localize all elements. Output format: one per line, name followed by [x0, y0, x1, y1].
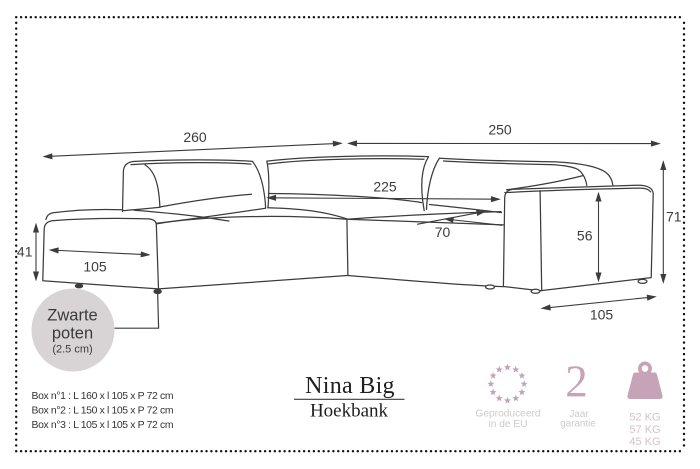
svg-text:70: 70	[435, 224, 451, 240]
svg-text:52 KG: 52 KG	[629, 412, 660, 424]
svg-text:105: 105	[83, 259, 107, 275]
svg-text:(2.5 cm): (2.5 cm)	[52, 344, 92, 356]
svg-text:57 KG: 57 KG	[629, 424, 660, 436]
svg-text:garantie: garantie	[560, 419, 596, 430]
svg-text:poten: poten	[52, 325, 93, 343]
svg-text:Nina Big: Nina Big	[305, 373, 395, 399]
svg-text:56: 56	[577, 228, 593, 244]
svg-text:41: 41	[17, 243, 33, 259]
svg-text:105: 105	[590, 307, 614, 323]
svg-text:Box n°3 : L 105 x l 105 x P 72: Box n°3 : L 105 x l 105 x P 72 cm	[32, 420, 174, 431]
svg-text:in de EU: in de EU	[488, 419, 527, 430]
svg-text:45 KG: 45 KG	[629, 436, 660, 448]
svg-text:2: 2	[565, 357, 588, 407]
svg-text:260: 260	[183, 129, 207, 145]
svg-text:71: 71	[666, 209, 682, 225]
svg-text:Box n°1 : L 160 x l 105 x P 72: Box n°1 : L 160 x l 105 x P 72 cm	[32, 391, 174, 402]
svg-text:250: 250	[488, 122, 512, 138]
svg-text:225: 225	[373, 178, 397, 194]
svg-text:Box n°2 : L 150 x l 105 x P 72: Box n°2 : L 150 x l 105 x P 72 cm	[32, 405, 174, 416]
svg-text:Hoekbank: Hoekbank	[310, 400, 389, 421]
svg-text:Zwarte: Zwarte	[47, 307, 97, 325]
svg-text:Geproduceerd: Geproduceerd	[475, 408, 540, 419]
